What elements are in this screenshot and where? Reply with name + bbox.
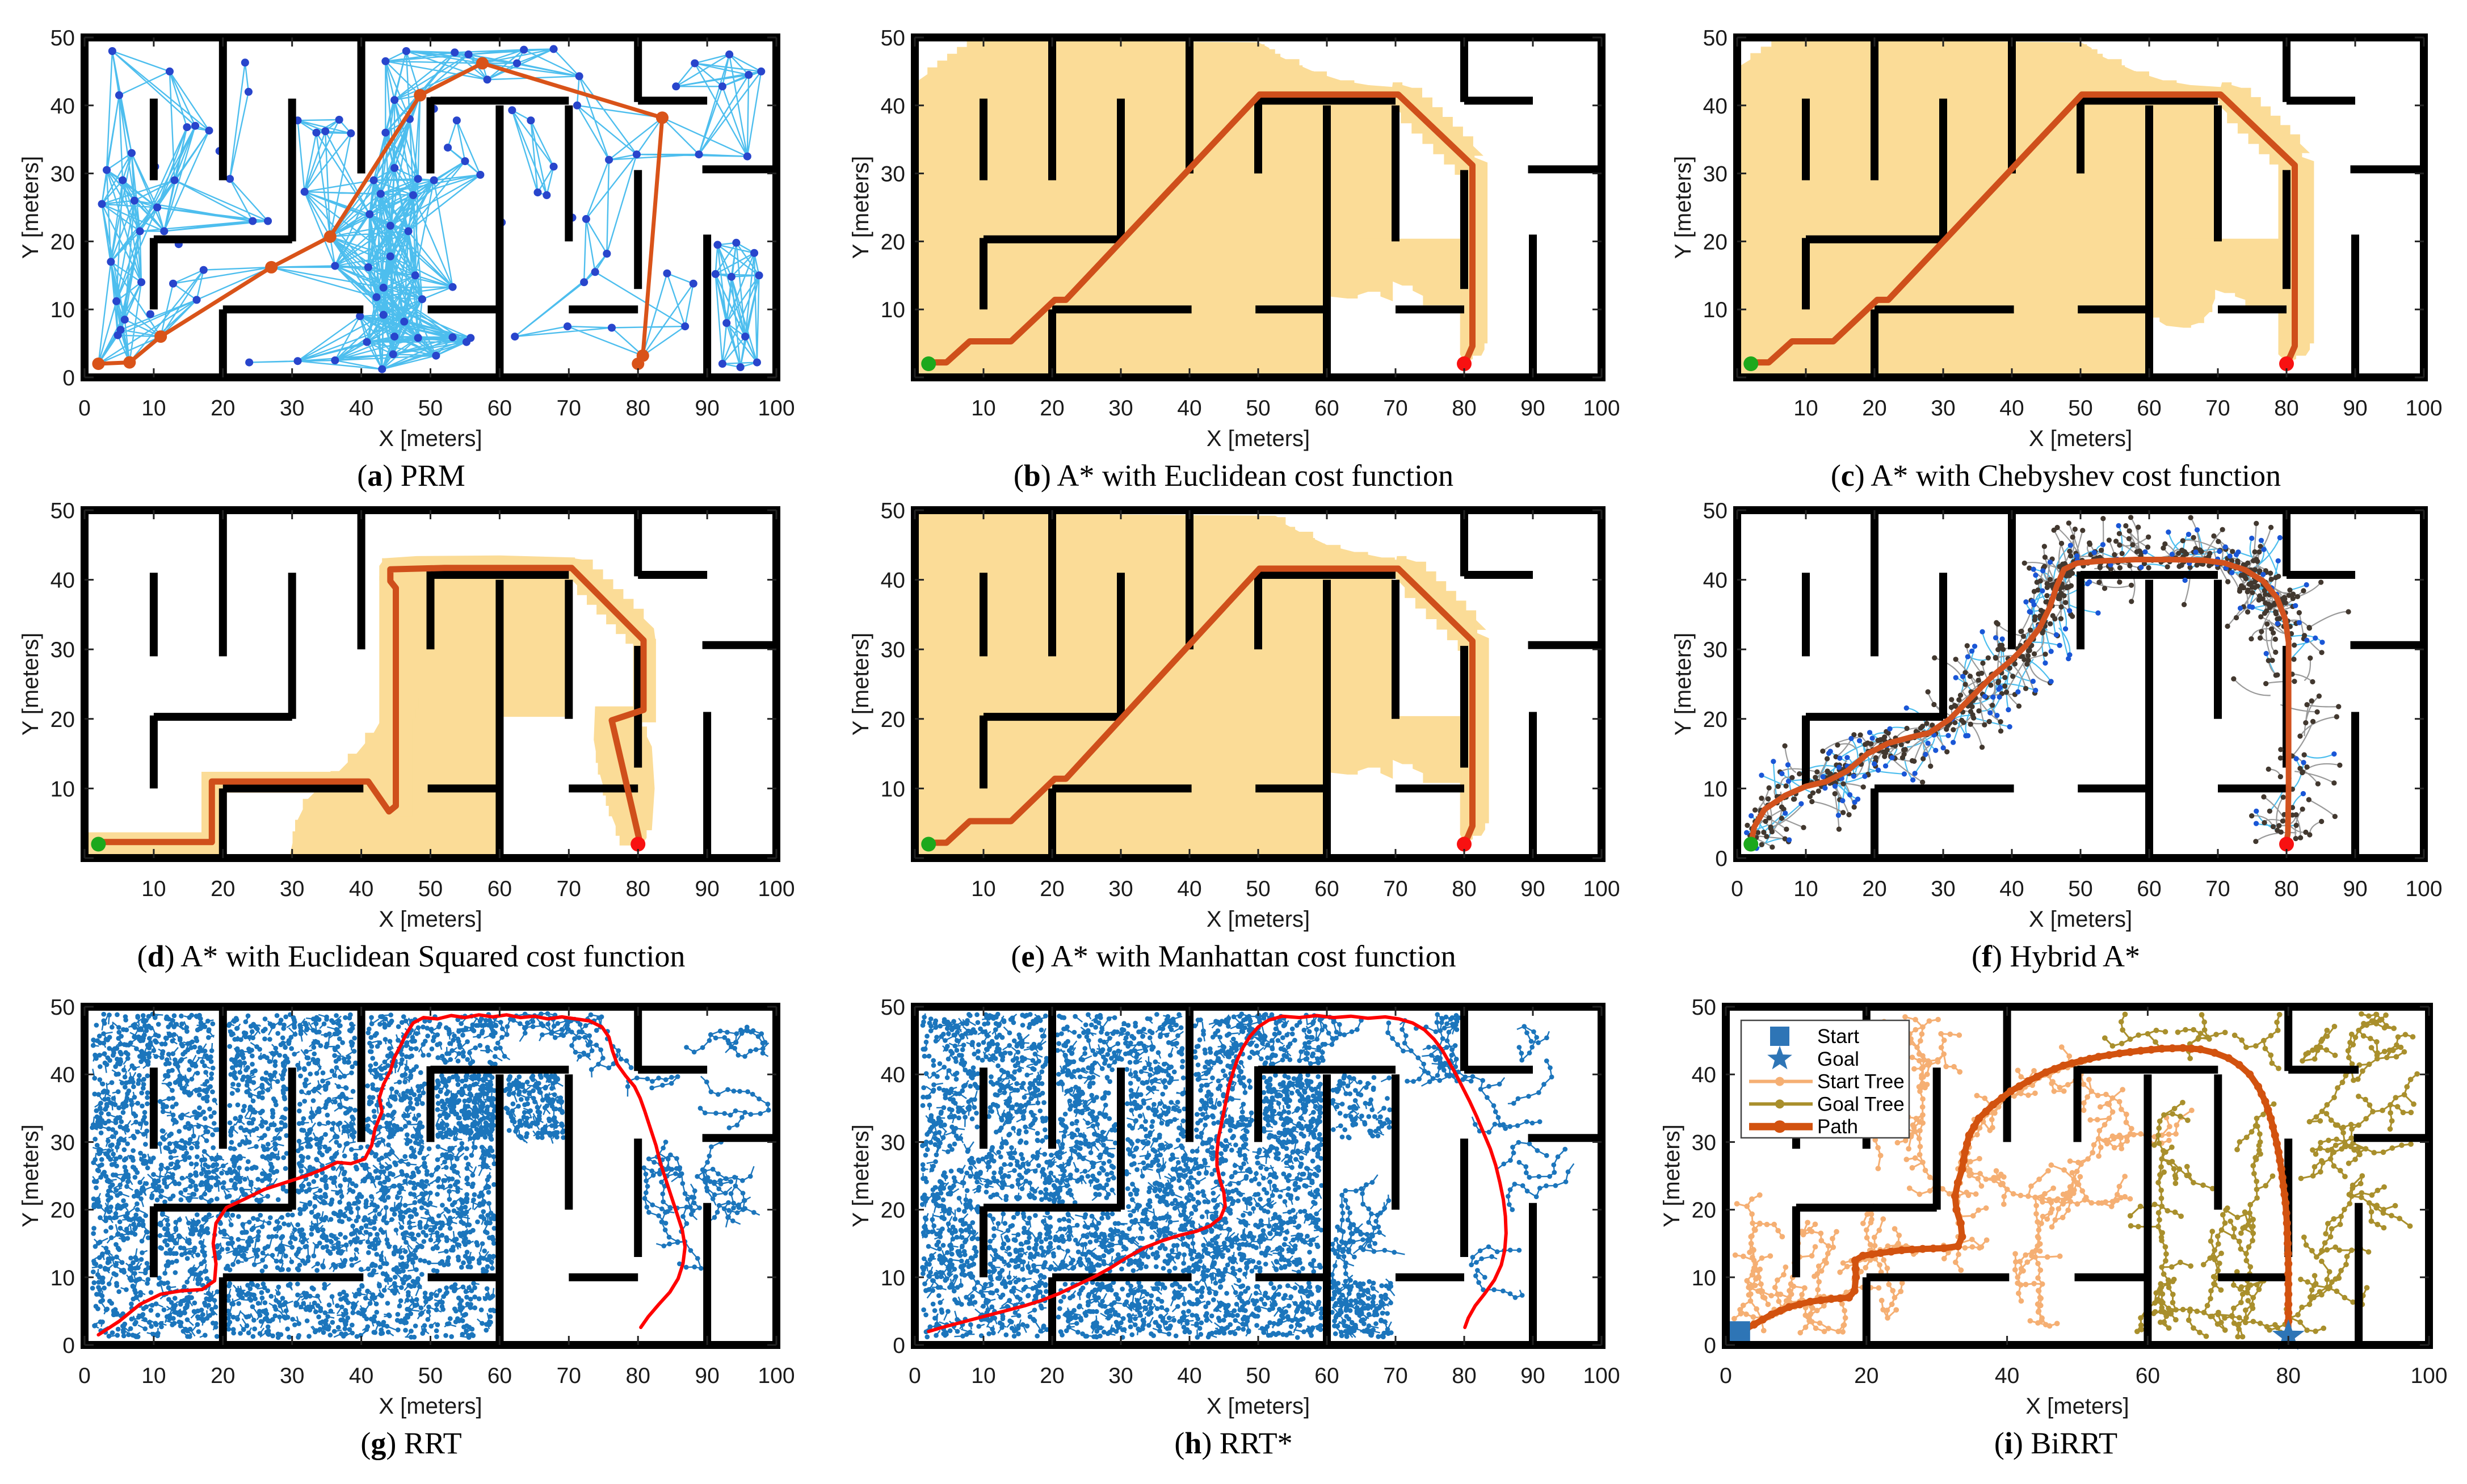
svg-text:X [meters]: X [meters] (1207, 426, 1310, 451)
svg-text:20: 20 (1862, 877, 1886, 901)
svg-text:80: 80 (1452, 1364, 1476, 1388)
svg-text:30: 30 (1931, 877, 1955, 901)
svg-text:50: 50 (2068, 877, 2092, 901)
svg-text:80: 80 (1452, 877, 1476, 901)
svg-text:100: 100 (1583, 396, 1620, 421)
svg-text:40: 40 (1999, 396, 2024, 421)
svg-text:60: 60 (1314, 877, 1339, 901)
svg-text:0: 0 (1731, 877, 1743, 901)
svg-text:100: 100 (758, 877, 795, 901)
svg-text:50: 50 (51, 995, 75, 1020)
svg-text:70: 70 (557, 396, 581, 421)
svg-text:50: 50 (881, 995, 905, 1020)
svg-text:10: 10 (51, 1266, 75, 1290)
svg-text:40: 40 (349, 396, 373, 421)
svg-text:10: 10 (971, 1364, 995, 1388)
svg-text:50: 50 (51, 26, 75, 51)
svg-text:40: 40 (1177, 877, 1201, 901)
svg-text:30: 30 (280, 1364, 304, 1388)
svg-text:10: 10 (971, 396, 995, 421)
svg-text:50: 50 (1703, 499, 1728, 523)
svg-text:40: 40 (881, 569, 905, 593)
svg-text:10: 10 (141, 1364, 166, 1388)
svg-text:X [meters]: X [meters] (379, 1394, 482, 1419)
svg-text:20: 20 (1703, 230, 1728, 254)
svg-text:50: 50 (1246, 877, 1270, 901)
svg-text:20: 20 (881, 230, 905, 254)
svg-text:0: 0 (62, 366, 75, 390)
svg-text:60: 60 (2137, 877, 2161, 901)
svg-text:70: 70 (557, 1364, 581, 1388)
svg-text:Y [meters]: Y [meters] (1671, 156, 1696, 259)
svg-text:30: 30 (1703, 162, 1728, 187)
svg-text:60: 60 (487, 1364, 512, 1388)
svg-text:30: 30 (280, 396, 304, 421)
svg-text:10: 10 (1793, 396, 1818, 421)
svg-text:100: 100 (1583, 877, 1620, 901)
svg-text:30: 30 (1108, 877, 1133, 901)
svg-text:30: 30 (1931, 396, 1955, 421)
svg-text:40: 40 (1703, 94, 1728, 119)
svg-text:90: 90 (1520, 1364, 1545, 1388)
svg-text:50: 50 (418, 877, 443, 901)
svg-text:20: 20 (1862, 396, 1886, 421)
svg-text:30: 30 (881, 162, 905, 187)
svg-text:(i) BiRRT: (i) BiRRT (1994, 1426, 2117, 1460)
svg-text:X [meters]: X [meters] (2029, 426, 2132, 451)
svg-text:80: 80 (2274, 877, 2298, 901)
svg-text:40: 40 (51, 1063, 75, 1087)
svg-text:40: 40 (1177, 396, 1201, 421)
svg-text:X [meters]: X [meters] (1207, 907, 1310, 932)
svg-text:20: 20 (1854, 1364, 1878, 1388)
svg-text:90: 90 (2343, 877, 2367, 901)
svg-text:40: 40 (1692, 1063, 1716, 1087)
svg-text:X [meters]: X [meters] (1207, 1394, 1310, 1419)
svg-text:(f) Hybrid A*: (f) Hybrid A* (1972, 939, 2140, 973)
svg-text:10: 10 (51, 777, 75, 801)
svg-text:20: 20 (1703, 708, 1728, 732)
svg-text:70: 70 (2205, 396, 2230, 421)
svg-text:Y [meters]: Y [meters] (18, 633, 43, 736)
svg-text:10: 10 (51, 298, 75, 322)
svg-text:30: 30 (1692, 1130, 1716, 1155)
svg-text:Y [meters]: Y [meters] (1671, 633, 1696, 736)
svg-text:X [meters]: X [meters] (379, 907, 482, 932)
svg-text:30: 30 (1108, 396, 1133, 421)
svg-text:70: 70 (557, 877, 581, 901)
svg-text:10: 10 (141, 396, 166, 421)
svg-text:40: 40 (1999, 877, 2024, 901)
svg-text:Y [meters]: Y [meters] (18, 1124, 43, 1227)
svg-text:50: 50 (1703, 26, 1728, 51)
svg-text:10: 10 (881, 298, 905, 322)
svg-text:80: 80 (626, 877, 650, 901)
svg-text:40: 40 (1995, 1364, 2019, 1388)
svg-text:60: 60 (1314, 1364, 1339, 1388)
svg-text:Start: Start (1817, 1025, 1859, 1048)
svg-text:0: 0 (1704, 1334, 1716, 1358)
svg-text:30: 30 (51, 1130, 75, 1155)
svg-text:50: 50 (881, 26, 905, 51)
svg-text:10: 10 (1793, 877, 1818, 901)
svg-text:50: 50 (418, 396, 443, 421)
svg-text:100: 100 (758, 1364, 795, 1388)
svg-text:30: 30 (881, 1130, 905, 1155)
svg-text:80: 80 (626, 396, 650, 421)
svg-text:40: 40 (881, 1063, 905, 1087)
svg-text:90: 90 (1520, 877, 1545, 901)
svg-text:100: 100 (2410, 1364, 2447, 1388)
svg-text:10: 10 (881, 777, 905, 801)
svg-text:X [meters]: X [meters] (379, 426, 482, 451)
svg-text:20: 20 (51, 1199, 75, 1223)
svg-text:50: 50 (418, 1364, 443, 1388)
svg-text:30: 30 (51, 162, 75, 187)
svg-text:0: 0 (893, 1334, 905, 1358)
svg-text:30: 30 (280, 877, 304, 901)
svg-text:(e) A* with Manhattan cost fun: (e) A* with Manhattan cost function (1011, 939, 1456, 973)
svg-text:10: 10 (141, 877, 166, 901)
svg-text:20: 20 (881, 708, 905, 732)
svg-text:90: 90 (1520, 396, 1545, 421)
svg-text:100: 100 (2405, 877, 2442, 901)
svg-text:50: 50 (1246, 396, 1270, 421)
svg-text:20: 20 (51, 230, 75, 254)
svg-text:20: 20 (211, 1364, 235, 1388)
svg-text:50: 50 (51, 499, 75, 523)
svg-text:10: 10 (971, 877, 995, 901)
svg-text:40: 40 (1177, 1364, 1201, 1388)
svg-text:50: 50 (1692, 995, 1716, 1020)
svg-text:30: 30 (1703, 638, 1728, 662)
svg-text:40: 40 (881, 94, 905, 119)
svg-text:Y [meters]: Y [meters] (848, 1124, 873, 1227)
svg-text:40: 40 (1703, 569, 1728, 593)
svg-text:60: 60 (487, 396, 512, 421)
svg-text:80: 80 (1452, 396, 1476, 421)
svg-text:80: 80 (2276, 1364, 2301, 1388)
svg-text:Y [meters]: Y [meters] (1659, 1124, 1684, 1227)
svg-text:80: 80 (626, 1364, 650, 1388)
svg-text:50: 50 (2068, 396, 2092, 421)
svg-text:Path: Path (1817, 1116, 1858, 1138)
svg-text:30: 30 (881, 638, 905, 662)
svg-text:20: 20 (1040, 1364, 1064, 1388)
svg-text:90: 90 (695, 1364, 719, 1388)
svg-text:(g) RRT: (g) RRT (360, 1426, 461, 1460)
svg-text:40: 40 (349, 1364, 373, 1388)
svg-text:Y [meters]: Y [meters] (848, 633, 873, 736)
svg-text:20: 20 (51, 708, 75, 732)
svg-text:20: 20 (1040, 396, 1064, 421)
svg-text:(d) A* with Euclidean Squared: (d) A* with Euclidean Squared cost funct… (137, 939, 686, 973)
svg-text:Y [meters]: Y [meters] (18, 156, 43, 259)
svg-text:60: 60 (2136, 1364, 2160, 1388)
svg-text:50: 50 (881, 499, 905, 523)
svg-text:0: 0 (78, 396, 91, 421)
svg-text:60: 60 (2137, 396, 2161, 421)
svg-text:0: 0 (1720, 1364, 1732, 1388)
svg-text:0: 0 (78, 1364, 91, 1388)
svg-text:30: 30 (1108, 1364, 1133, 1388)
svg-text:90: 90 (2343, 396, 2367, 421)
svg-text:10: 10 (1692, 1266, 1716, 1290)
svg-text:0: 0 (909, 1364, 921, 1388)
svg-text:20: 20 (881, 1199, 905, 1223)
svg-text:20: 20 (1040, 877, 1064, 901)
svg-text:(a) PRM: (a) PRM (357, 459, 465, 493)
svg-text:90: 90 (695, 877, 719, 901)
svg-text:20: 20 (1692, 1199, 1716, 1223)
svg-text:(h) RRT*: (h) RRT* (1174, 1426, 1292, 1460)
svg-text:10: 10 (881, 1266, 905, 1290)
svg-text:80: 80 (2274, 396, 2298, 421)
svg-text:20: 20 (211, 396, 235, 421)
svg-text:100: 100 (2405, 396, 2442, 421)
svg-text:10: 10 (1703, 777, 1728, 801)
svg-text:10: 10 (1703, 298, 1728, 322)
svg-text:20: 20 (211, 877, 235, 901)
svg-text:70: 70 (1383, 396, 1407, 421)
svg-text:Start Tree: Start Tree (1817, 1071, 1905, 1093)
svg-text:100: 100 (758, 396, 795, 421)
svg-text:0: 0 (62, 1334, 75, 1358)
svg-text:100: 100 (1583, 1364, 1620, 1388)
svg-text:50: 50 (1246, 1364, 1270, 1388)
svg-text:X [meters]: X [meters] (2029, 907, 2132, 932)
svg-text:70: 70 (1383, 877, 1407, 901)
svg-text:60: 60 (1314, 396, 1339, 421)
svg-text:X [meters]: X [meters] (2025, 1394, 2129, 1419)
svg-text:Y [meters]: Y [meters] (848, 156, 873, 259)
svg-text:Goal: Goal (1817, 1048, 1859, 1070)
svg-text:40: 40 (51, 94, 75, 119)
svg-text:Goal Tree: Goal Tree (1817, 1093, 1905, 1115)
svg-text:(c) A* with Chebyshev cost fun: (c) A* with Chebyshev cost function (1831, 459, 2281, 493)
svg-text:70: 70 (1383, 1364, 1407, 1388)
svg-text:40: 40 (349, 877, 373, 901)
svg-text:0: 0 (1715, 847, 1728, 871)
svg-text:70: 70 (2205, 877, 2230, 901)
svg-text:30: 30 (51, 638, 75, 662)
svg-text:(b) A* with Euclidean cost fun: (b) A* with Euclidean cost function (1014, 459, 1453, 493)
svg-text:60: 60 (487, 877, 512, 901)
svg-text:40: 40 (51, 569, 75, 593)
svg-text:90: 90 (695, 396, 719, 421)
